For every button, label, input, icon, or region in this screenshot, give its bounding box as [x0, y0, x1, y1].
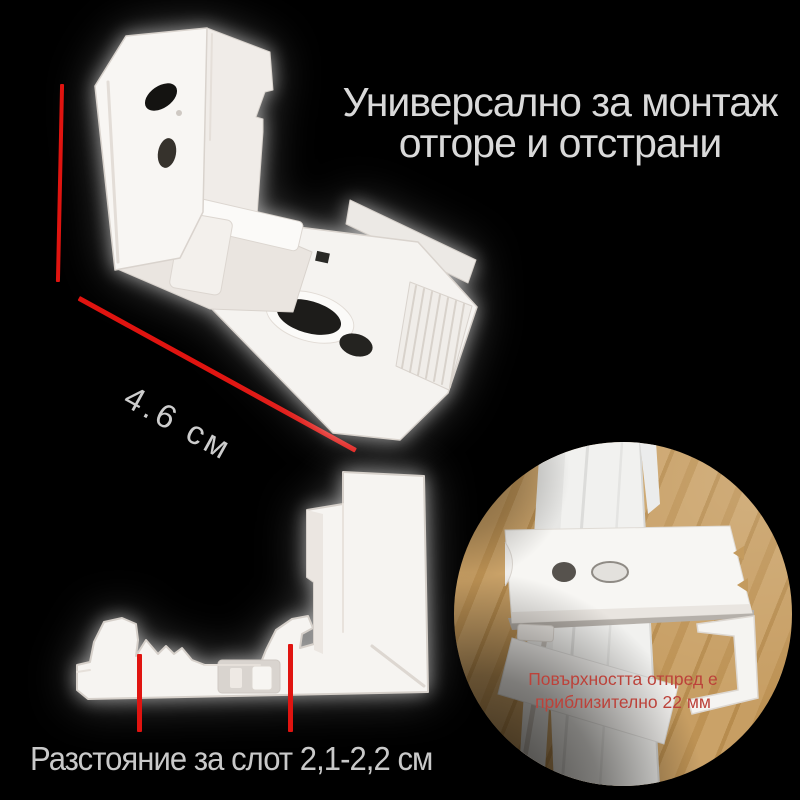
headline-line2: отгоре и отстрани: [330, 123, 790, 164]
inset-caption: Повърхността отпред е приблизително 22 м…: [454, 668, 792, 714]
inset-caption-line1: Повърхността отпред е: [454, 668, 792, 691]
product-image-canvas: Универсално за монтаж отгоре и отстрани …: [0, 0, 800, 800]
bottom-bracket-photo: [60, 462, 445, 707]
inset-circle-photo: Повърхността отпред е приблизително 22 м…: [454, 442, 792, 786]
inset-caption-line2: приблизително 22 мм: [454, 691, 792, 714]
headline-line1: Универсално за монтаж: [330, 82, 790, 123]
inset-rail-drawing: [454, 442, 792, 786]
headline: Универсално за монтаж отгоре и отстрани: [330, 82, 790, 164]
slot-distance-label: Разстояние за слот 2,1-2,2 см: [30, 740, 432, 778]
slot-pointer-line-left: [137, 654, 142, 732]
slot-pointer-line-right: [288, 644, 293, 732]
